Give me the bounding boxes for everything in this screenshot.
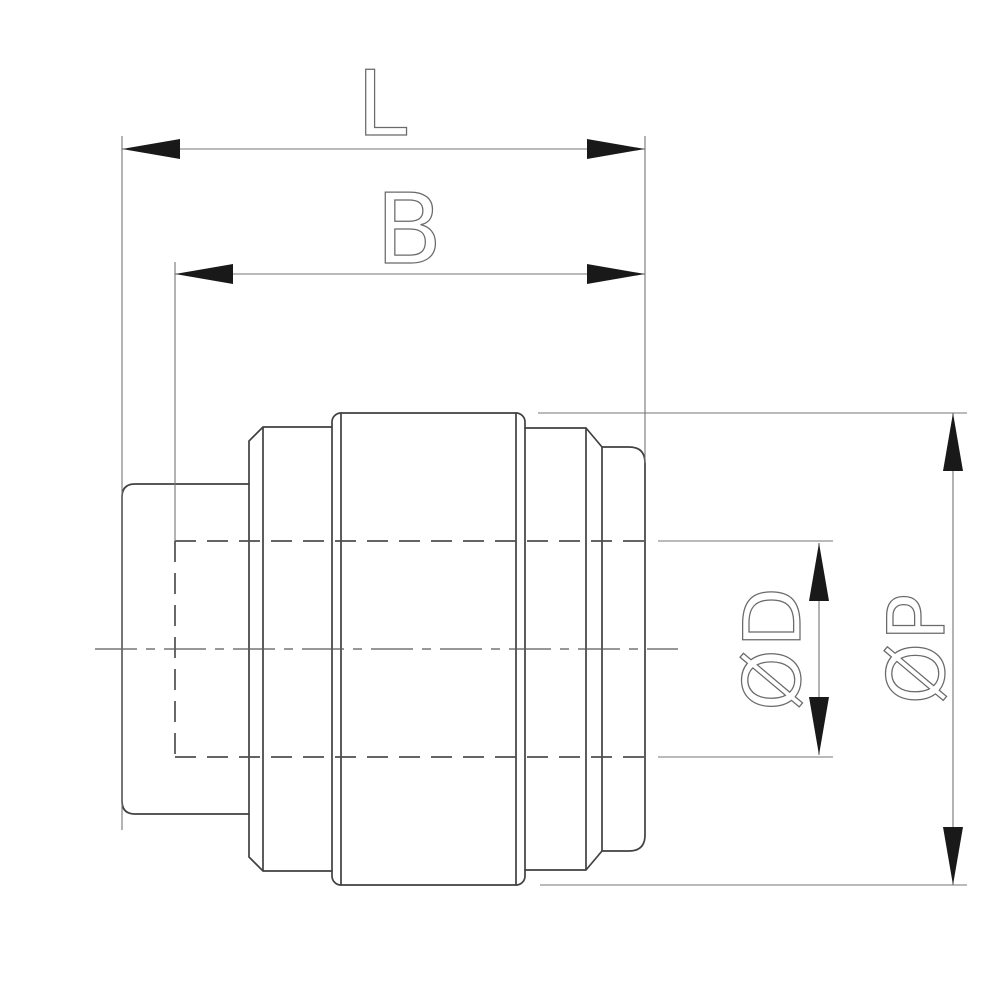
technical-drawing: L B ØD ØP <box>0 0 1000 1000</box>
label-outer-diameter: ØP <box>873 592 963 704</box>
drawing-canvas: L B ØD ØP <box>0 0 1000 1000</box>
label-bore-diameter: ØD <box>729 585 819 710</box>
label-overall-length: L <box>357 52 409 157</box>
label-body-length: B <box>376 173 445 286</box>
